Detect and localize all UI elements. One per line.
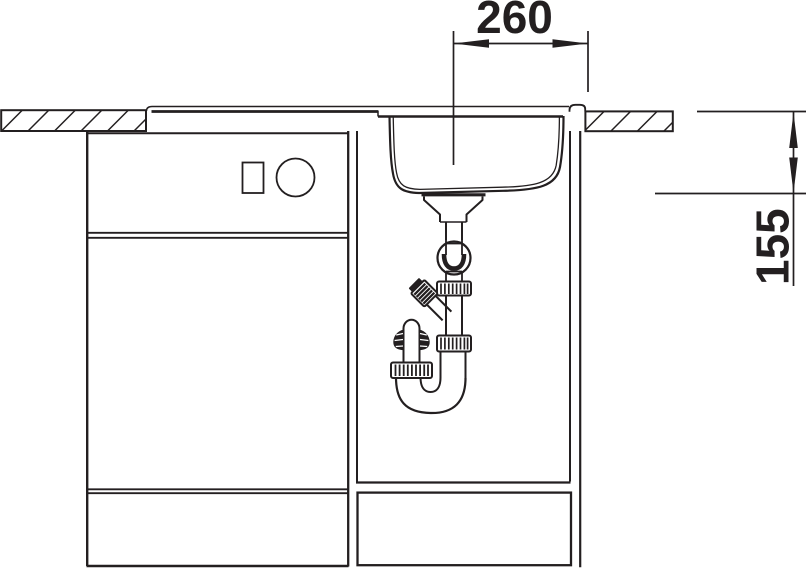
dim155-arrow-down [789,158,798,194]
cabinet-divider-upper [88,233,348,238]
sink-bowl-inner [393,116,559,189]
u-bend-inner [421,377,441,392]
tailpipe-walls [446,222,462,240]
cabinet-button [243,163,264,194]
sink-installation-drawing: 260 155 [0,0,806,569]
sink-rim-lip-right [570,105,586,112]
pipe-mid-walls [446,296,462,336]
trap-right-arm-walls [441,352,466,379]
drain-outlet-left [424,197,440,223]
dim155-arrow-up [789,113,798,149]
sink [147,105,586,193]
worktop-left-hatched [1,110,146,131]
cabinet [87,131,581,567]
coupling-nut-lower [437,336,471,352]
sink-bowl-outer [390,116,564,193]
standpipe-dome [404,320,420,363]
worktop [1,110,673,131]
coupling-nut-upper [437,282,471,296]
worktop-right-hatched [585,111,672,131]
cabinet-divider-lower [88,489,348,493]
dim155-label: 155 [747,208,799,285]
plinth-box [358,493,572,566]
dimension-260: 260 [454,0,589,165]
technical-drawing-canvas: 260 155 [0,0,806,569]
drain-trap [391,195,486,413]
u-bend-outer [396,378,466,414]
drain-outlet-right [467,197,483,223]
dim260-arrow-right [553,39,589,48]
dimension-155: 155 [655,112,806,287]
cabinet-knob [277,159,315,197]
dim260-label: 260 [476,0,553,43]
